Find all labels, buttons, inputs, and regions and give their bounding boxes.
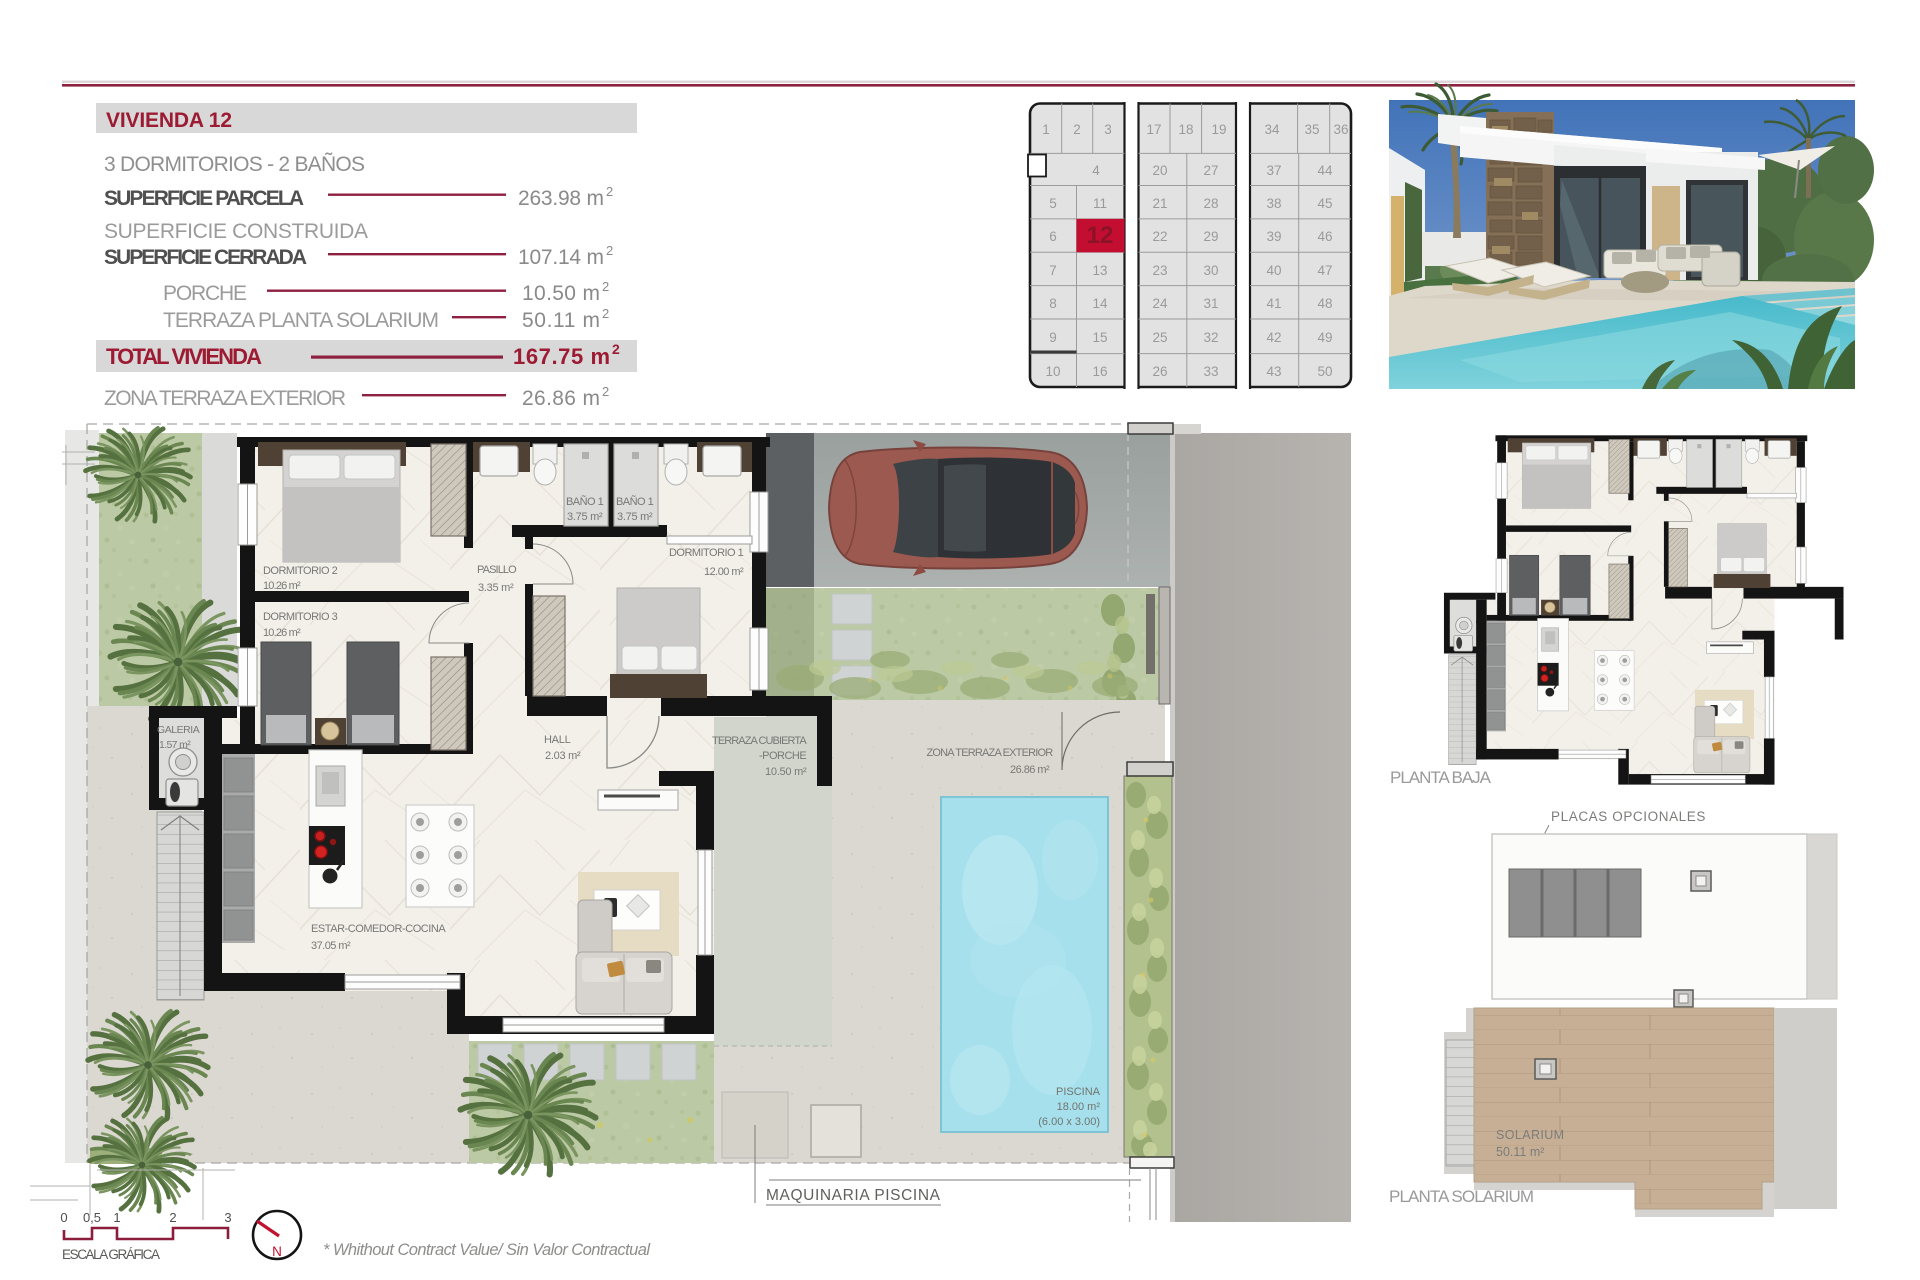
svg-text:38: 38 — [1266, 196, 1281, 211]
svg-text:12.00 m²: 12.00 m² — [704, 566, 744, 578]
svg-text:PASILLO: PASILLO — [477, 564, 517, 576]
svg-text:36: 36 — [1333, 122, 1348, 137]
svg-text:1: 1 — [1042, 122, 1050, 137]
svg-text:0,5: 0,5 — [83, 1210, 101, 1225]
svg-text:31: 31 — [1203, 296, 1218, 311]
svg-text:TERRAZA CUBIERTA: TERRAZA CUBIERTA — [712, 735, 807, 747]
svg-text:ESTAR-COMEDOR-COCINA: ESTAR-COMEDOR-COCINA — [311, 923, 446, 935]
svg-text:5: 5 — [1049, 196, 1057, 211]
svg-text:11: 11 — [1093, 196, 1107, 211]
svg-text:MAQUINARIA PISCINA: MAQUINARIA PISCINA — [766, 1187, 941, 1204]
svg-text:10.26 m²: 10.26 m² — [263, 627, 301, 639]
svg-text:15: 15 — [1092, 330, 1107, 345]
svg-text:28: 28 — [1203, 196, 1218, 211]
svg-text:PISCINA: PISCINA — [1056, 1086, 1101, 1098]
svg-text:30: 30 — [1203, 263, 1218, 278]
svg-text:3.75 m²: 3.75 m² — [617, 511, 653, 523]
svg-text:23: 23 — [1152, 263, 1167, 278]
svg-text:37: 37 — [1266, 163, 1281, 178]
svg-text:ZONA TERRAZA EXTERIOR: ZONA TERRAZA EXTERIOR — [104, 387, 346, 410]
svg-text:107.14 m: 107.14 m — [518, 246, 604, 269]
svg-text:10.50 m²: 10.50 m² — [765, 766, 807, 778]
svg-text:167.75 m: 167.75 m — [513, 344, 610, 369]
svg-text:32: 32 — [1203, 330, 1218, 345]
svg-text:ZONA TERRAZA EXTERIOR: ZONA TERRAZA EXTERIOR — [927, 747, 1054, 759]
svg-text:BAÑO 1: BAÑO 1 — [566, 495, 604, 508]
svg-text:26: 26 — [1152, 364, 1167, 379]
svg-text:35: 35 — [1304, 122, 1319, 137]
svg-text:SUPERFICIE CERRADA: SUPERFICIE CERRADA — [104, 246, 307, 269]
svg-text:* Whithout Contract Value/ Si: * Whithout Contract Value/ Sin Valor Con… — [323, 1241, 651, 1259]
svg-text:25: 25 — [1152, 330, 1167, 345]
svg-text:HALL: HALL — [544, 734, 571, 746]
svg-text:2: 2 — [606, 243, 613, 258]
svg-text:10.26 m²: 10.26 m² — [263, 580, 301, 592]
svg-text:13: 13 — [1092, 263, 1107, 278]
svg-text:50: 50 — [1317, 364, 1332, 379]
svg-text:22: 22 — [1152, 229, 1167, 244]
svg-text:50.11 m²: 50.11 m² — [1496, 1145, 1544, 1159]
svg-text:18: 18 — [1178, 122, 1193, 137]
svg-text:26.86 m²: 26.86 m² — [1010, 764, 1050, 776]
svg-text:3.35 m²: 3.35 m² — [478, 582, 514, 594]
svg-text:8: 8 — [1049, 296, 1057, 311]
svg-text:24: 24 — [1152, 296, 1168, 311]
svg-text:(6.00 x 3.00): (6.00 x 3.00) — [1038, 1116, 1100, 1128]
svg-text:PLACAS OPCIONALES: PLACAS OPCIONALES — [1551, 809, 1706, 824]
svg-text:10.50 m: 10.50 m — [522, 282, 600, 305]
svg-text:GALERIA: GALERIA — [157, 724, 200, 736]
svg-text:3: 3 — [1104, 122, 1112, 137]
svg-text:39: 39 — [1266, 229, 1281, 244]
svg-text:TOTAL VIVIENDA: TOTAL VIVIENDA — [106, 344, 262, 369]
svg-text:9: 9 — [1049, 330, 1057, 345]
svg-text:3 DORMITORIOS - 2 BAÑOS: 3 DORMITORIOS - 2 BAÑOS — [104, 152, 365, 176]
svg-text:3: 3 — [224, 1210, 231, 1225]
svg-text:0: 0 — [60, 1210, 67, 1225]
svg-text:N: N — [272, 1244, 282, 1259]
svg-text:263.98 m: 263.98 m — [518, 187, 604, 210]
svg-text:2: 2 — [606, 184, 613, 199]
svg-text:PLANTA SOLARIUM: PLANTA SOLARIUM — [1389, 1187, 1534, 1206]
svg-text:45: 45 — [1317, 196, 1332, 211]
svg-text:-PORCHE: -PORCHE — [759, 750, 807, 762]
svg-text:DORMITORIO 3: DORMITORIO 3 — [263, 611, 338, 623]
svg-text:2: 2 — [602, 384, 609, 399]
svg-text:50.11 m: 50.11 m — [522, 309, 600, 332]
svg-text:2: 2 — [602, 306, 609, 321]
svg-text:DORMITORIO 2: DORMITORIO 2 — [263, 565, 338, 577]
svg-text:40: 40 — [1266, 263, 1281, 278]
svg-text:41: 41 — [1266, 296, 1281, 311]
svg-text:7: 7 — [1049, 263, 1057, 278]
svg-text:VIVIENDA 12: VIVIENDA 12 — [106, 109, 232, 132]
svg-text:33: 33 — [1203, 364, 1218, 379]
svg-text:DORMITORIO 1: DORMITORIO 1 — [669, 547, 744, 559]
svg-text:SUPERFICIE PARCELA: SUPERFICIE PARCELA — [104, 187, 304, 210]
svg-text:21: 21 — [1152, 196, 1167, 211]
svg-text:16: 16 — [1092, 364, 1107, 379]
svg-text:27: 27 — [1203, 163, 1218, 178]
svg-text:2: 2 — [169, 1210, 176, 1225]
svg-text:14: 14 — [1092, 296, 1108, 311]
svg-text:49: 49 — [1317, 330, 1332, 345]
svg-text:12: 12 — [1087, 222, 1114, 249]
svg-text:SUPERFICIE CONSTRUIDA: SUPERFICIE CONSTRUIDA — [104, 220, 368, 243]
svg-text:6: 6 — [1049, 229, 1057, 244]
svg-text:37.05 m²: 37.05 m² — [311, 940, 351, 952]
svg-text:42: 42 — [1266, 330, 1281, 345]
svg-text:SOLARIUM: SOLARIUM — [1496, 1128, 1565, 1142]
svg-text:46: 46 — [1317, 229, 1332, 244]
svg-text:2: 2 — [602, 279, 609, 294]
svg-text:44: 44 — [1317, 163, 1333, 178]
svg-text:4: 4 — [1092, 163, 1100, 178]
svg-text:2.03 m²: 2.03 m² — [545, 750, 581, 762]
svg-text:29: 29 — [1203, 229, 1218, 244]
svg-text:43: 43 — [1266, 364, 1281, 379]
svg-text:1: 1 — [113, 1210, 120, 1225]
svg-text:3.75 m²: 3.75 m² — [567, 511, 603, 523]
svg-text:19: 19 — [1211, 122, 1226, 137]
svg-text:PLANTA BAJA: PLANTA BAJA — [1390, 768, 1492, 787]
svg-text:10: 10 — [1045, 364, 1060, 379]
svg-text:47: 47 — [1317, 263, 1332, 278]
svg-text:18.00 m²: 18.00 m² — [1057, 1101, 1101, 1113]
svg-text:2: 2 — [612, 341, 620, 357]
svg-text:2: 2 — [1073, 122, 1081, 137]
svg-text:ESCALA GRÁFICA: ESCALA GRÁFICA — [62, 1247, 160, 1262]
svg-text:17: 17 — [1146, 122, 1161, 137]
svg-text:34: 34 — [1264, 122, 1280, 137]
svg-text:26.86 m: 26.86 m — [522, 387, 600, 410]
svg-text:TERRAZA PLANTA SOLARIUM: TERRAZA PLANTA SOLARIUM — [163, 309, 439, 332]
svg-text:20: 20 — [1152, 163, 1167, 178]
svg-text:1.57 m²: 1.57 m² — [159, 739, 191, 751]
svg-text:BAÑO 1: BAÑO 1 — [616, 495, 654, 508]
svg-text:48: 48 — [1317, 296, 1332, 311]
svg-text:PORCHE: PORCHE — [163, 282, 247, 305]
